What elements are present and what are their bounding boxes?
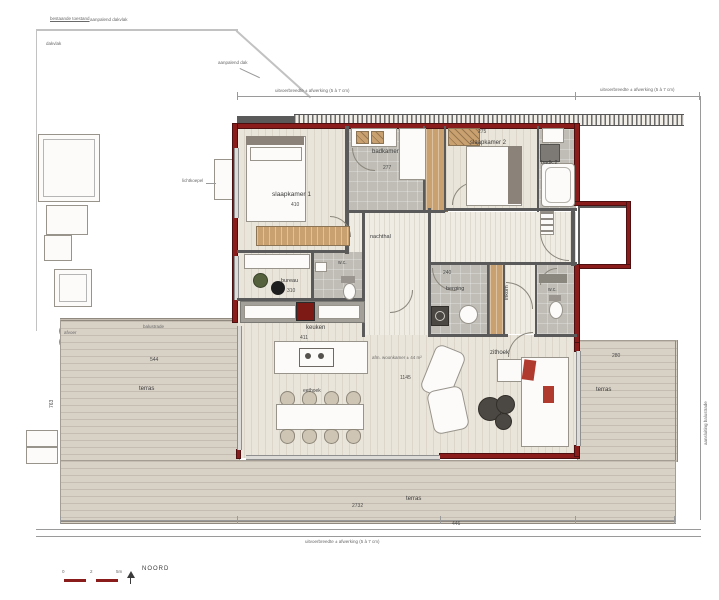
note-right-edge: aansluiting balustrade [704, 401, 709, 445]
dim-tick [575, 516, 576, 524]
terrace-right [577, 340, 678, 462]
terrace-right-dim: 280 [612, 354, 620, 359]
wall [444, 208, 577, 211]
window [234, 256, 239, 300]
sink-icon [356, 131, 369, 144]
window [576, 351, 581, 446]
chair-icon [324, 429, 339, 444]
room-label-inkom: inkom [505, 285, 511, 300]
room-label-wc2: w.c. [548, 288, 557, 293]
dimension-line-right [700, 96, 701, 520]
scale-tick-1: 2 [90, 570, 93, 575]
note-top-left: aanpalend dakvlak [90, 18, 128, 23]
wall [311, 252, 314, 300]
wall [571, 208, 575, 266]
chair-icon [302, 429, 317, 444]
toilet-cistern [341, 276, 355, 283]
dim-tick [237, 92, 238, 100]
terrace-bottom [60, 460, 676, 524]
north-label: NOORD [142, 566, 169, 572]
living-dim: 1145 [400, 376, 411, 381]
dimension-line [36, 536, 701, 537]
wardrobe-icon [256, 226, 350, 246]
north-arrow-icon [127, 571, 135, 578]
room-label-badk2: badk.2 [541, 161, 558, 167]
terrace-bottom-dim: 2732 [352, 504, 363, 509]
wall [535, 264, 537, 334]
room-label-zithoek: zithoek [490, 350, 509, 356]
burner-icon [305, 353, 311, 359]
exterior-wall [627, 202, 630, 268]
cooktop-icon [299, 348, 334, 367]
toilet-icon [549, 301, 563, 319]
ac-unit-icon [26, 447, 58, 464]
bed-headboard [508, 146, 522, 204]
common-corridor [578, 206, 630, 268]
dimension-line [60, 520, 675, 521]
sink-icon [371, 131, 384, 144]
dim-note-top-right: uitvoerbreedte ± afwerking (5 à 7 cm) [600, 88, 675, 93]
room-label-badkamer: badkamer [372, 149, 399, 155]
desk-icon [244, 254, 310, 269]
washing-machine-door [435, 311, 445, 321]
room-label-berging: berging [446, 287, 464, 293]
exterior-wall [575, 446, 579, 456]
dimension-line-top [237, 96, 700, 97]
room-label-slaapkamer1: slaapkamer 1 [272, 192, 311, 199]
coffee-table-icon [495, 413, 512, 430]
note-top-far-left: bestaande toestand [50, 17, 90, 22]
bed-headboard [246, 136, 304, 145]
window [246, 455, 440, 460]
scale-tick-2: 5m [116, 570, 122, 575]
wall [534, 334, 577, 337]
window [234, 148, 239, 218]
exterior-wall [237, 450, 240, 458]
dim-berging: 240 [443, 271, 451, 276]
exterior-wall [575, 265, 630, 268]
dim-tick [237, 516, 238, 524]
note-drain: afvoer [64, 331, 77, 336]
cushion-icon [543, 386, 554, 403]
north-arrow-stem [130, 577, 131, 584]
room-label-bureau: bureau [281, 279, 298, 285]
wall [237, 116, 295, 124]
exterior-wall [575, 202, 630, 205]
burner-icon [318, 353, 324, 359]
dim-bureau: 310 [287, 289, 295, 294]
room-label-wc1: w.c. [338, 261, 347, 266]
terrace-left-label: terras [139, 386, 154, 392]
bottom-dim: 446 [452, 522, 460, 527]
round-table-icon [459, 305, 478, 324]
dimension-line [36, 529, 701, 530]
kitchen-cabinet [244, 305, 296, 319]
terrace-bottom-label: terras [406, 496, 421, 502]
dim-tick [674, 516, 675, 524]
coffee-table-icon [496, 395, 515, 414]
chair-icon [280, 429, 295, 444]
dim-tick [60, 516, 61, 524]
room-label-keuken: keuken [306, 325, 325, 331]
wall [237, 250, 347, 253]
window [237, 326, 242, 450]
bathtub-inner [545, 167, 571, 203]
floor-plan-canvas: slaapkamer 1 410 badkamer 277 275 slaapk… [0, 0, 719, 600]
chair-icon [346, 429, 361, 444]
room-label-nachthal: nachthal [370, 235, 391, 241]
scale-bar [64, 579, 86, 582]
sink-counter [539, 274, 567, 283]
dim-note-top-left: uitvoerbreedte ± afwerking (5 à 7 cm) [275, 89, 350, 94]
dim-slaapkamer2: 275 [478, 130, 486, 135]
exterior-wall [575, 124, 579, 204]
scale-bar [96, 579, 118, 582]
skylight-icon [46, 205, 88, 235]
note-roof: dakvlak [46, 42, 61, 47]
skylight-inner [43, 139, 95, 197]
skylight-inner [59, 274, 87, 302]
note-skylight: lichtkoepel [182, 179, 203, 184]
wall [444, 126, 446, 212]
note-top-right: aanpalend dak [218, 61, 248, 66]
kitchen-cabinet [318, 305, 360, 319]
intercom-panel-icon [540, 211, 554, 235]
toilet-icon [343, 283, 356, 300]
living-note: afm. woonkamer ± 44 m² [372, 356, 422, 361]
wall [430, 334, 508, 337]
sink-icon [542, 128, 564, 143]
terrace-left-vdim: 763 [50, 400, 55, 408]
dim-badkamer: 277 [383, 166, 391, 171]
stove-icon [296, 302, 315, 321]
room-label-slaapkamer2: slaapkamer 2 [470, 140, 506, 146]
leader-line [240, 68, 260, 78]
sink-icon [315, 262, 327, 272]
room-label-eethoek: eethoek [303, 389, 321, 394]
property-line [36, 29, 238, 31]
dim-slaapkamer1: 410 [291, 203, 299, 208]
dim-keuken: 411 [300, 336, 308, 341]
exterior-wall [440, 454, 579, 458]
balustrade-label: balustrade [143, 325, 164, 330]
leader-line [206, 183, 216, 184]
terrace-left-dim: 544 [150, 358, 158, 363]
skylight-icon [44, 235, 72, 261]
plant-icon [253, 273, 268, 288]
bed-pillow [250, 147, 302, 161]
dim-tick [575, 92, 576, 100]
dim-note-bottom: uitvoerbreedte ± afwerking (5 à 7 cm) [305, 540, 380, 545]
wall [487, 264, 489, 334]
dining-table-icon [276, 404, 364, 430]
exterior-wall [575, 343, 579, 351]
shower-icon [399, 128, 426, 180]
dim-tick [440, 516, 441, 524]
property-line [36, 29, 37, 331]
wall [537, 126, 539, 212]
terrace-right-label: terras [596, 387, 611, 393]
scale-tick-0: 0 [62, 570, 65, 575]
exterior-wall [575, 265, 579, 343]
ac-unit-icon [26, 430, 58, 447]
